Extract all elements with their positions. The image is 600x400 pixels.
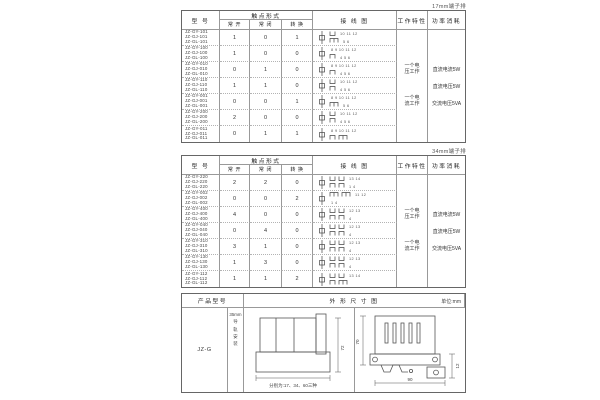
normally-open-count: 0 xyxy=(220,191,250,207)
mounting-text: 导 xyxy=(233,320,237,325)
wiring-diagram: 12 134 xyxy=(315,255,395,270)
changeover-count: 0 xyxy=(282,207,313,223)
header-model: 型 号 xyxy=(182,11,220,30)
wiring-diagram: 12 134 xyxy=(315,223,395,238)
model-cell: JZ-GY-101JZ-GJ-101JZ-GL-101 xyxy=(182,30,220,46)
mounting-text: 装 xyxy=(233,342,237,347)
wiring-diagram-cell: 13 141 4 xyxy=(313,175,397,191)
header-contact-form: 触点形式 xyxy=(220,11,313,20)
power-consumption-item: 直流电流5W xyxy=(433,66,461,73)
svg-text:4: 4 xyxy=(349,217,352,221)
changeover-count: 1 xyxy=(282,94,313,110)
wiring-diagram-cell: 13 14 xyxy=(313,271,397,287)
dim-side-width: 90 xyxy=(407,377,413,382)
normally-closed-count: 1 xyxy=(250,78,282,94)
wiring-diagram-cell: 10 11 124 5 6 xyxy=(313,78,397,94)
model-number: JZ-GL-200 xyxy=(185,120,208,125)
normally-open-count: 1 xyxy=(220,46,250,62)
work-characteristic-item: 一个电压工作 xyxy=(404,209,419,221)
work-characteristic-item: 一个电流工作 xyxy=(404,241,419,253)
work-characteristic-item: 一个电压工作 xyxy=(404,64,419,76)
model-cell: JZ-GY-220JZ-GJ-220JZ-GL-220 xyxy=(182,175,220,191)
work-characteristic-cell: 一个电压工作一个电流工作 xyxy=(397,30,428,142)
svg-text:4 5 6: 4 5 6 xyxy=(340,120,350,124)
model-number: JZ-GL-400 xyxy=(185,217,208,222)
header-changeover: 转 换 xyxy=(282,20,313,30)
wiring-diagram: 12 134 xyxy=(315,207,395,222)
normally-open-count: 1 xyxy=(220,255,250,271)
normally-closed-count: 1 xyxy=(250,126,282,142)
side-view-pane: 70 90 12 xyxy=(354,308,465,392)
unit-label: 单位:mm xyxy=(441,298,461,305)
header-wiring-diagram: 接 线 图 xyxy=(313,156,397,175)
changeover-count: 1 xyxy=(282,126,313,142)
svg-text:1 4: 1 4 xyxy=(349,185,355,189)
model-number: JZ-GL-040 xyxy=(185,233,208,238)
svg-text:12 13: 12 13 xyxy=(349,241,361,245)
model-number: JZ-GL-101 xyxy=(185,40,208,45)
changeover-count: 0 xyxy=(282,46,313,62)
wiring-diagram: 13 14 xyxy=(315,272,395,287)
model-cell: JZ-GY-001JZ-GJ-001JZ-GL-001 xyxy=(182,94,220,110)
wiring-diagram: 10 11 124 5 6 xyxy=(315,78,395,93)
model-cell: JZ-GY-130JZ-GJ-130JZ-GL-130 xyxy=(182,255,220,271)
svg-text:4: 4 xyxy=(349,233,352,237)
normally-open-count: 2 xyxy=(220,110,250,126)
normally-closed-count: 1 xyxy=(250,239,282,255)
wiring-diagram-cell: 12 134 xyxy=(313,223,397,239)
svg-text:12 13: 12 13 xyxy=(349,257,361,261)
svg-text:4: 4 xyxy=(349,249,352,253)
changeover-count: 0 xyxy=(282,110,313,126)
normally-closed-count: 0 xyxy=(250,207,282,223)
dim-side-height: 70 xyxy=(355,339,360,345)
header-contact-form: 触点形式 xyxy=(220,156,313,165)
terminal-strip-label-17mm: 17mm端子排 xyxy=(432,2,466,10)
svg-text:8 9 10 11 12: 8 9 10 11 12 xyxy=(331,129,357,133)
svg-text:10 11 12: 10 11 12 xyxy=(340,32,358,36)
wiring-diagram-cell: 12 134 xyxy=(313,255,397,271)
power-consumption-item: 直流电压5W xyxy=(433,228,461,235)
mounting-type-cell: 35mm导轨安装 xyxy=(228,308,244,392)
dim-front-height: 72 xyxy=(340,345,345,351)
model-cell: JZ-GY-011JZ-GJ-011JZ-GL-011 xyxy=(182,126,220,142)
svg-text:10 11 12: 10 11 12 xyxy=(340,112,358,116)
wiring-diagram: 8 9 10 11 124 5 6 xyxy=(315,62,395,77)
front-view-drawing: 72 分别为:17、34、60三种 xyxy=(244,310,354,390)
model-cell: JZ-GY-400JZ-GJ-400JZ-GL-400 xyxy=(182,207,220,223)
wiring-diagram: 8 9 10 11 12 xyxy=(315,127,395,142)
header-work-characteristic: 工作特性 xyxy=(397,11,428,30)
wiring-diagram: 13 141 4 xyxy=(315,175,395,190)
normally-open-count: 1 xyxy=(220,271,250,287)
model-cell: JZ-GY-100JZ-GJ-100JZ-GL-100 xyxy=(182,46,220,62)
normally-closed-count: 1 xyxy=(250,62,282,78)
normally-open-count: 2 xyxy=(220,175,250,191)
wiring-diagram-cell: 8 9 10 11 12 xyxy=(313,126,397,142)
model-number: JZ-GL-100 xyxy=(185,56,208,61)
changeover-count: 2 xyxy=(282,191,313,207)
header-changeover: 转 换 xyxy=(282,165,313,175)
normally-closed-count: 2 xyxy=(250,175,282,191)
svg-text:1 4: 1 4 xyxy=(331,201,337,205)
changeover-count: 0 xyxy=(282,223,313,239)
normally-open-count: 1 xyxy=(220,30,250,46)
dim-rail-depth: 12 xyxy=(455,363,460,369)
model-number: JZ-GL-002 xyxy=(185,201,208,206)
side-view-drawing: 70 90 12 xyxy=(355,310,465,390)
model-cell: JZ-GY-010JZ-GJ-010JZ-GL-010 xyxy=(182,62,220,78)
changeover-count: 0 xyxy=(282,62,313,78)
width-variants-note: 分别为:17、34、60三种 xyxy=(269,382,317,389)
header-normally-closed: 常 闭 xyxy=(250,20,282,30)
normally-open-count: 0 xyxy=(220,94,250,110)
normally-closed-count: 0 xyxy=(250,110,282,126)
model-cell: JZ-GY-112JZ-GJ-112JZ-GL-112 xyxy=(182,271,220,287)
svg-text:8 9 10 11 12: 8 9 10 11 12 xyxy=(331,96,357,100)
svg-text:10 11 12: 10 11 12 xyxy=(340,80,358,84)
wiring-diagram-cell: 8 9 10 11 125 6 xyxy=(313,94,397,110)
normally-closed-count: 3 xyxy=(250,255,282,271)
normally-closed-count: 0 xyxy=(250,46,282,62)
changeover-count: 0 xyxy=(282,78,313,94)
terminal-strip-label-34mm: 34mm端子排 xyxy=(432,147,466,155)
mounting-text: 轨 xyxy=(233,328,237,333)
wiring-diagram: 12 134 xyxy=(315,239,395,254)
mounting-text: 35mm xyxy=(229,313,241,318)
model-number: JZ-GL-110 xyxy=(185,88,207,93)
model-cell: JZ-GY-040JZ-GJ-040JZ-GL-040 xyxy=(182,223,220,239)
normally-closed-count: 0 xyxy=(250,30,282,46)
wiring-diagram: 10 11 124 5 6 xyxy=(315,110,395,125)
wiring-diagram-cell: 12 134 xyxy=(313,239,397,255)
normally-open-count: 0 xyxy=(220,126,250,142)
changeover-count: 2 xyxy=(282,271,313,287)
changeover-count: 1 xyxy=(282,30,313,46)
front-view-pane: 72 分别为:17、34、60三种 xyxy=(244,308,354,392)
product-model-value: JZ-G xyxy=(182,308,228,392)
wiring-diagram: 11 121 4 xyxy=(315,191,395,206)
model-cell: JZ-GY-200JZ-GJ-200JZ-GL-200 xyxy=(182,110,220,126)
normally-closed-count: 4 xyxy=(250,223,282,239)
svg-text:8 9 10 11 12: 8 9 10 11 12 xyxy=(331,48,357,52)
header-work-characteristic: 工作特性 xyxy=(397,156,428,175)
work-characteristic-item: 一个电流工作 xyxy=(404,96,419,108)
wiring-diagram: 10 11 125 6 xyxy=(315,30,395,45)
svg-text:4 5 6: 4 5 6 xyxy=(340,72,350,76)
normally-open-count: 4 xyxy=(220,207,250,223)
power-consumption-item: 交流电压5VA xyxy=(432,245,461,252)
header-wiring-diagram: 接 线 图 xyxy=(313,11,397,30)
wiring-diagram-cell: 11 121 4 xyxy=(313,191,397,207)
svg-text:5 6: 5 6 xyxy=(343,40,349,44)
svg-text:13 14: 13 14 xyxy=(349,177,361,181)
svg-text:4 5 6: 4 5 6 xyxy=(340,56,350,60)
header-normally-open: 常 开 xyxy=(220,165,250,175)
wiring-diagram: 8 9 10 11 125 6 xyxy=(315,94,395,109)
model-cell: JZ-GY-002JZ-GJ-002JZ-GL-002 xyxy=(182,191,220,207)
normally-closed-count: 1 xyxy=(250,271,282,287)
model-number: JZ-GL-310 xyxy=(185,249,208,254)
outline-dimension-table: 产品型号 外 形 尺 寸 图 单位:mm JZ-G 35mm导轨安装 72 分别… xyxy=(181,293,466,393)
header-normally-closed: 常 闭 xyxy=(250,165,282,175)
header-power-consumption: 功率消耗 xyxy=(428,156,465,175)
normally-open-count: 3 xyxy=(220,239,250,255)
header-normally-open: 常 开 xyxy=(220,20,250,30)
changeover-count: 0 xyxy=(282,175,313,191)
header-outline-dimension: 外 形 尺 寸 图 单位:mm xyxy=(244,294,465,308)
power-consumption-item: 直流电压5W xyxy=(433,83,461,90)
normally-open-count: 1 xyxy=(220,78,250,94)
svg-text:4: 4 xyxy=(349,265,352,269)
outline-drawings: 72 分别为:17、34、60三种 xyxy=(244,308,465,392)
model-number: JZ-GL-011 xyxy=(185,136,207,141)
model-number: JZ-GL-112 xyxy=(185,281,207,286)
svg-text:13 14: 13 14 xyxy=(349,274,361,278)
header-power-consumption: 功率消耗 xyxy=(428,11,465,30)
model-cell: JZ-GY-110JZ-GJ-110JZ-GL-110 xyxy=(182,78,220,94)
model-cell: JZ-GY-310JZ-GJ-310JZ-GL-310 xyxy=(182,239,220,255)
normally-open-count: 0 xyxy=(220,223,250,239)
wiring-diagram-cell: 10 11 124 5 6 xyxy=(313,110,397,126)
svg-text:11 12: 11 12 xyxy=(355,193,366,197)
header-model: 型 号 xyxy=(182,156,220,175)
changeover-count: 0 xyxy=(282,239,313,255)
normally-closed-count: 0 xyxy=(250,94,282,110)
wiring-diagram-cell: 8 9 10 11 124 5 6 xyxy=(313,46,397,62)
changeover-count: 0 xyxy=(282,255,313,271)
svg-text:8 9 10 11 12: 8 9 10 11 12 xyxy=(331,64,357,68)
wiring-diagram-cell: 10 11 125 6 xyxy=(313,30,397,46)
normally-closed-count: 0 xyxy=(250,191,282,207)
power-consumption-item: 直流电流5W xyxy=(433,211,461,218)
mounting-text: 安 xyxy=(233,335,237,340)
wiring-diagram: 8 9 10 11 124 5 6 xyxy=(315,46,395,61)
power-consumption-item: 交流电压5VA xyxy=(432,100,461,107)
model-number: JZ-GL-130 xyxy=(185,265,208,270)
work-characteristic-cell: 一个电压工作一个电流工作 xyxy=(397,175,428,287)
model-number: JZ-GL-220 xyxy=(185,185,208,190)
outline-title: 外 形 尺 寸 图 xyxy=(330,296,379,305)
spec-table-34mm: 型 号 触点形式 常 开 常 闭 转 换 接 线 图 工作特性 功率消耗 JZ-… xyxy=(181,155,466,288)
wiring-diagram-cell: 8 9 10 11 124 5 6 xyxy=(313,62,397,78)
svg-text:4 5 6: 4 5 6 xyxy=(340,88,350,92)
svg-text:12 13: 12 13 xyxy=(349,209,361,213)
header-product-model: 产品型号 xyxy=(182,294,244,308)
power-consumption-cell: 直流电流5W直流电压5W交流电压5VA xyxy=(428,175,465,287)
spec-table-17mm: 型 号 触点形式 常 开 常 闭 转 换 接 线 图 工作特性 功率消耗 JZ-… xyxy=(181,10,466,143)
model-number: JZ-GL-010 xyxy=(185,72,208,77)
datasheet-page: { "colors":{"ink":"#333333","border":"#9… xyxy=(0,0,600,400)
svg-text:12 13: 12 13 xyxy=(349,225,361,229)
power-consumption-cell: 直流电流5W直流电压5W交流电压5VA xyxy=(428,30,465,142)
normally-open-count: 0 xyxy=(220,62,250,78)
model-number: JZ-GL-001 xyxy=(185,104,208,109)
svg-text:5 6: 5 6 xyxy=(343,104,349,108)
wiring-diagram-cell: 12 134 xyxy=(313,207,397,223)
